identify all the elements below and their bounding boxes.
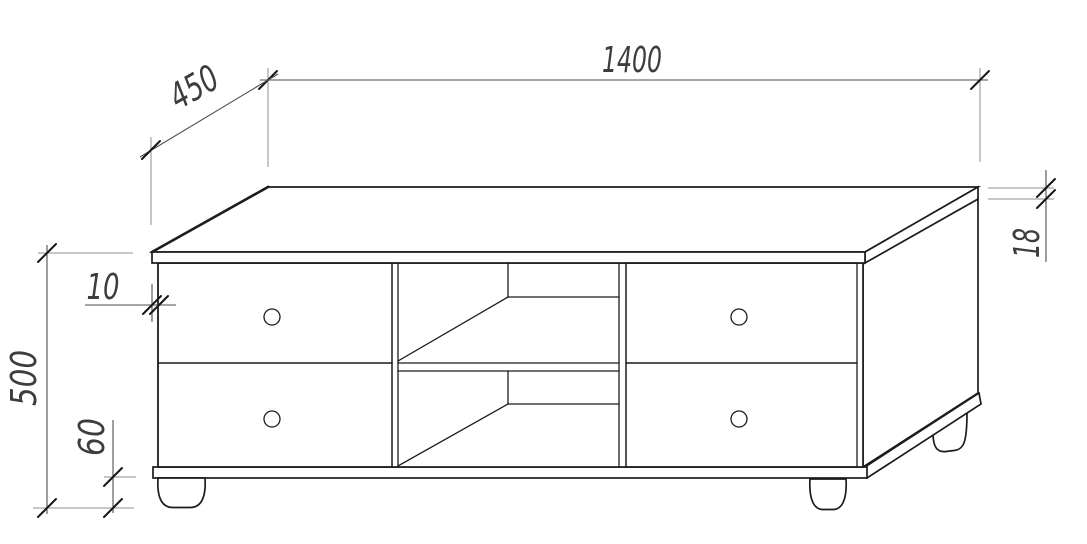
- leg-front-right: [810, 479, 846, 510]
- technical-drawing-page: 1400 450 500: [0, 0, 1087, 544]
- dim-leg-height: 60: [72, 418, 136, 517]
- top-panel: [152, 187, 978, 263]
- dim-width: 1400: [259, 40, 989, 167]
- top-surface: [152, 187, 978, 252]
- dim-thickness-label: 18: [1007, 228, 1048, 258]
- leg-front-left: [158, 478, 205, 508]
- plinth-front: [153, 467, 867, 478]
- dim-top-thickness: 18: [988, 170, 1055, 262]
- dim-depth-label: 450: [162, 58, 226, 118]
- top-edge-front: [152, 252, 865, 263]
- dim-leg-label: 60: [72, 418, 113, 456]
- tv-stand-drawing: 1400 450 500: [0, 0, 1087, 544]
- tv-stand: [152, 187, 981, 510]
- dim-height-label: 500: [4, 350, 45, 406]
- dim-width-label: 1400: [602, 40, 662, 81]
- carcass-front: [158, 263, 863, 467]
- dim-overhang-label: 10: [87, 267, 120, 308]
